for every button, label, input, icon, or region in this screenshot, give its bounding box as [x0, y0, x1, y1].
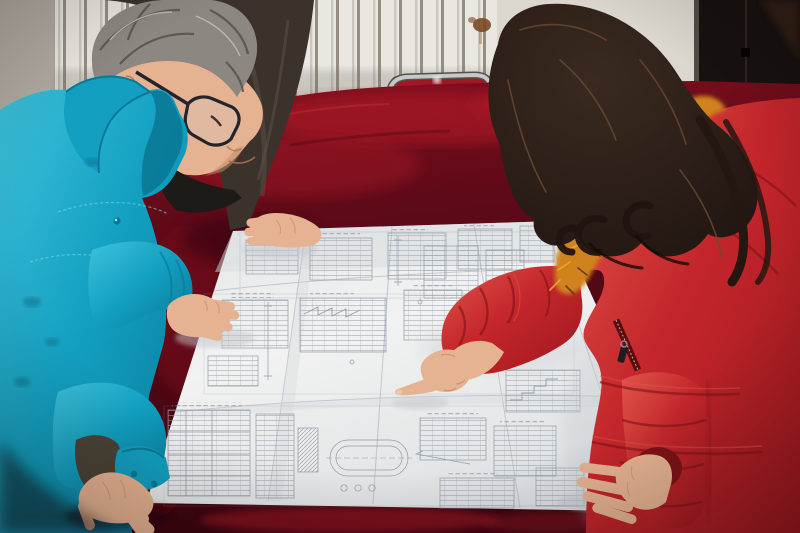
vignette-overlay: [0, 0, 800, 533]
photo: [0, 0, 800, 533]
photo-stage: [0, 0, 800, 533]
